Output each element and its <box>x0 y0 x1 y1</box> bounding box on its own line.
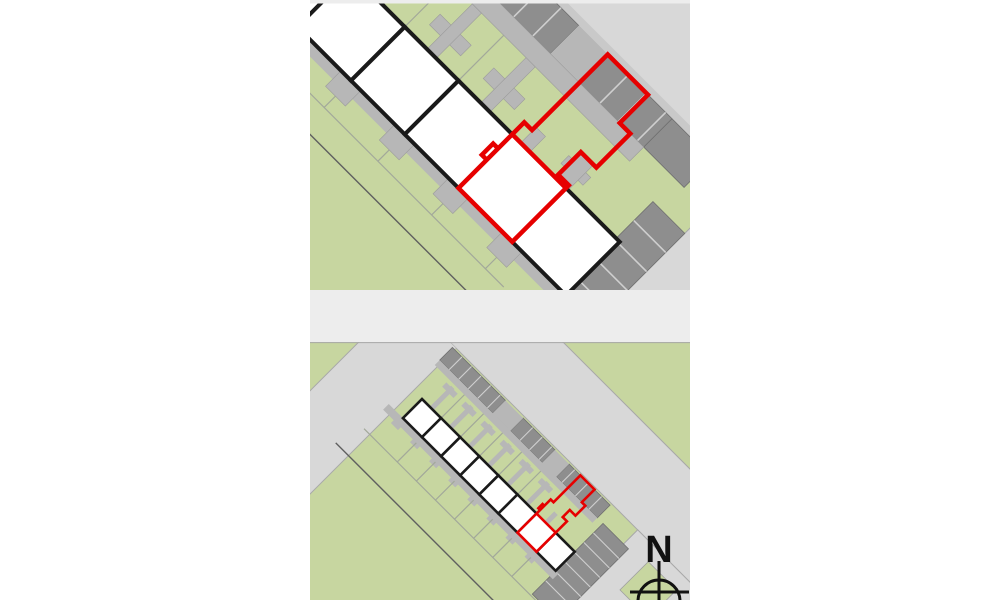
panel-divider-band <box>310 290 690 342</box>
site-plan-page: N <box>0 0 1000 600</box>
top-edge-strip <box>310 0 690 4</box>
north-label: N <box>645 529 672 571</box>
site-plan-figure: N <box>0 0 1000 600</box>
